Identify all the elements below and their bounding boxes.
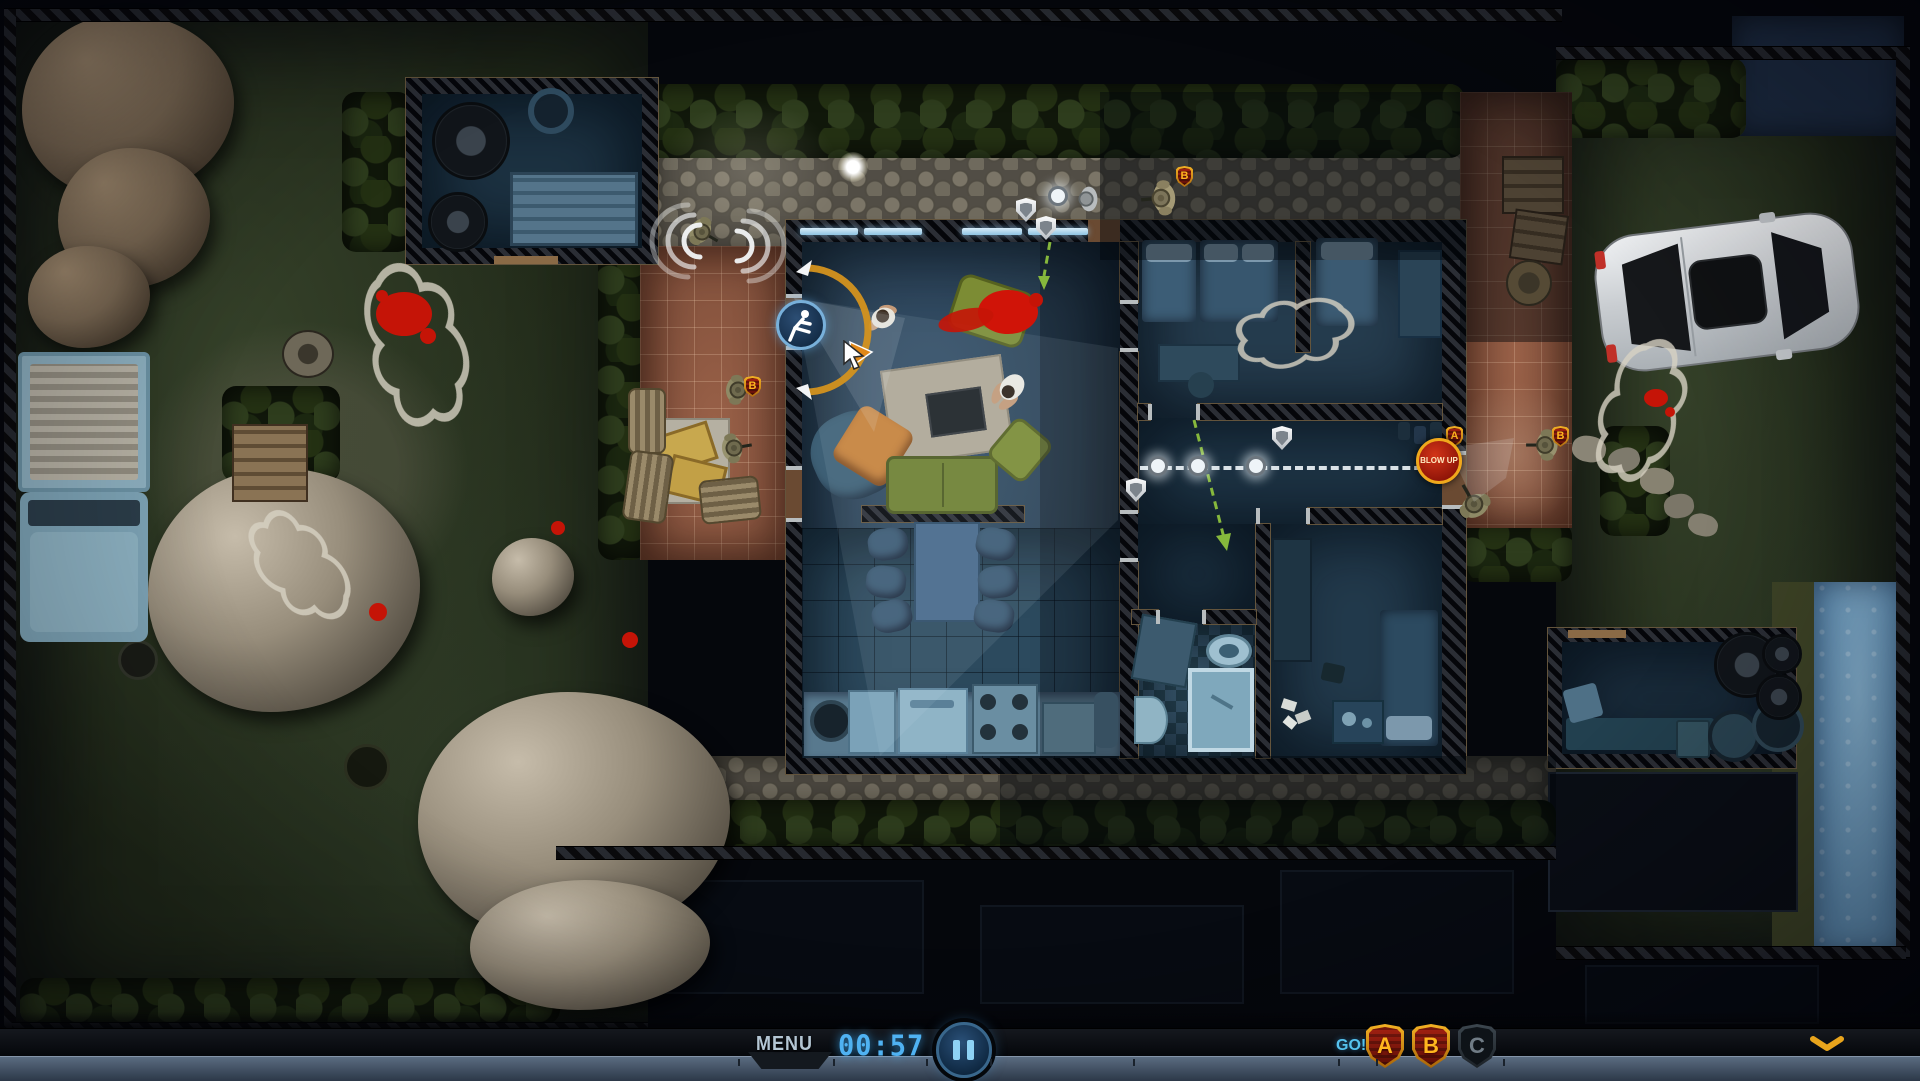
window [864, 228, 922, 235]
truck-windshield [28, 500, 140, 526]
right-top-hedge [1556, 58, 1746, 138]
door-frame [786, 294, 802, 298]
garage-side-ferns [342, 92, 412, 252]
desk-chair [1188, 372, 1214, 398]
hud-tick [1133, 1059, 1135, 1066]
window [962, 228, 1022, 235]
door-frame [1202, 610, 1206, 624]
map-border [4, 8, 16, 1036]
background-panel [1280, 870, 1514, 994]
go-code-letter: A [1369, 1027, 1401, 1065]
truck-bed-floor [30, 364, 138, 480]
shed-tire-small [1762, 634, 1802, 674]
toilet-bowl [1219, 644, 1239, 658]
game-stage: B B B A BLOW UP MENU 00:57 GO [0, 0, 1920, 1080]
go-label: GO! [1336, 1037, 1366, 1055]
garage-crate [510, 172, 638, 246]
stone-well [282, 330, 334, 378]
dark-room [1548, 772, 1798, 912]
squad-badge-letter: B [746, 378, 759, 395]
room-shadow [1040, 242, 1120, 758]
pickup-truck-bed [18, 352, 150, 492]
door-frame [1120, 558, 1138, 562]
plate [1362, 718, 1372, 728]
green-couch [886, 456, 998, 514]
shoes [1414, 426, 1426, 444]
pause-icon [967, 1040, 974, 1060]
couch-seam [942, 463, 944, 507]
wardrobe [1272, 538, 1312, 662]
shed-machine [1676, 720, 1710, 758]
pickup-truck-cab [20, 492, 148, 642]
menu-button[interactable]: MENU [756, 1031, 826, 1055]
door-frame [1120, 300, 1138, 304]
interior-wall [1256, 524, 1270, 758]
hud-tick [1503, 1059, 1505, 1066]
map-border [1556, 46, 1904, 60]
patio-bottom-ferns [1460, 522, 1572, 582]
door-frame [1148, 404, 1152, 420]
door-frame [1306, 508, 1310, 524]
swat-trooper[interactable] [711, 425, 757, 471]
door-frame [1120, 510, 1138, 514]
plate [1342, 712, 1356, 726]
water-stream [1814, 582, 1904, 954]
hud-tick [990, 1059, 992, 1066]
barrel-dark [118, 640, 158, 680]
hud-tick [1376, 1059, 1378, 1066]
burner [1012, 694, 1028, 710]
body-on-path [1068, 180, 1106, 218]
sink-basin [910, 700, 954, 708]
door-frame [786, 518, 802, 522]
bathroom-wall [1204, 610, 1256, 624]
side-door-gap [786, 470, 802, 518]
breach-kick-icon[interactable] [776, 300, 826, 350]
garage-door [494, 256, 558, 264]
squad-badge-letter: B [1554, 428, 1567, 445]
outdoor-lamp-glow [838, 152, 868, 182]
pause-icon [953, 1040, 960, 1060]
shower [1188, 668, 1254, 752]
lounge-chair [698, 475, 762, 525]
go-code-letter: B [1415, 1027, 1447, 1065]
interior-wall [1198, 404, 1442, 420]
waypoint-dot[interactable] [1188, 456, 1208, 476]
shield-marker-core [1276, 431, 1288, 446]
shield-marker-core [1040, 221, 1052, 236]
waypoint-dot[interactable] [1048, 186, 1068, 206]
background-panel [980, 905, 1244, 1004]
bedroom-desk [1332, 700, 1384, 744]
waypoint-dot[interactable] [1148, 456, 1168, 476]
truck-roof [30, 532, 138, 632]
shower-drain [1211, 694, 1234, 709]
shadow-overlay [1000, 756, 1556, 848]
go-code-letter: C [1461, 1027, 1493, 1065]
chevron-down-icon[interactable] [1810, 1036, 1844, 1058]
toilet [1206, 634, 1252, 668]
burner [980, 694, 996, 710]
water-pool-top [1732, 16, 1904, 136]
frying-pan [810, 700, 852, 742]
bathroom-sink [1134, 696, 1168, 744]
stump [344, 744, 390, 790]
map-border [1556, 946, 1906, 960]
blow-up-order-marker[interactable]: BLOW UP [1416, 438, 1462, 484]
dresser [1398, 250, 1442, 338]
pillow [1386, 716, 1432, 740]
cursor-arrow-icon [842, 340, 868, 372]
breach-kick-glyph [779, 303, 823, 347]
lounge-chair [628, 388, 666, 454]
hud-tick [738, 1059, 740, 1066]
door-frame [1256, 508, 1260, 524]
hud-tick [833, 1059, 835, 1066]
squad-badge-letter: B [1178, 168, 1191, 185]
shadow-overlay [1460, 92, 1572, 342]
waypoint-dot[interactable] [1246, 456, 1266, 476]
map-border [12, 8, 1562, 22]
bed [1380, 610, 1438, 746]
burner [1012, 724, 1028, 740]
kitchen-sink [898, 688, 968, 754]
shield-marker-core [1130, 483, 1142, 498]
shed-door [1568, 630, 1626, 638]
hud-tick [926, 1059, 928, 1066]
map-border [1896, 46, 1910, 958]
blow-up-label: BLOW UP [1420, 457, 1458, 465]
interior-wall [1308, 508, 1442, 524]
door-frame [1120, 348, 1138, 352]
map-border [556, 846, 1556, 860]
wooden-pallet [232, 424, 308, 502]
door-frame [786, 466, 802, 470]
wheel-rim [528, 88, 574, 134]
stove [972, 684, 1038, 754]
door-frame [1156, 610, 1160, 624]
tire-single [428, 192, 488, 252]
corridor-floor [1138, 524, 1256, 624]
shoes [1398, 422, 1410, 440]
door-frame [1196, 404, 1200, 420]
dining-chair [864, 564, 907, 600]
tire-stack [432, 102, 510, 180]
parked-car [1583, 190, 1872, 394]
pause-button[interactable] [936, 1022, 992, 1078]
shed-tire-small2 [1756, 674, 1802, 720]
shield-marker-core [1020, 203, 1032, 218]
hud-tick [1338, 1059, 1340, 1066]
mission-timer: 00:57 [838, 1030, 924, 1063]
fridge [848, 690, 896, 754]
dining-table [914, 522, 980, 622]
burner [980, 724, 996, 740]
